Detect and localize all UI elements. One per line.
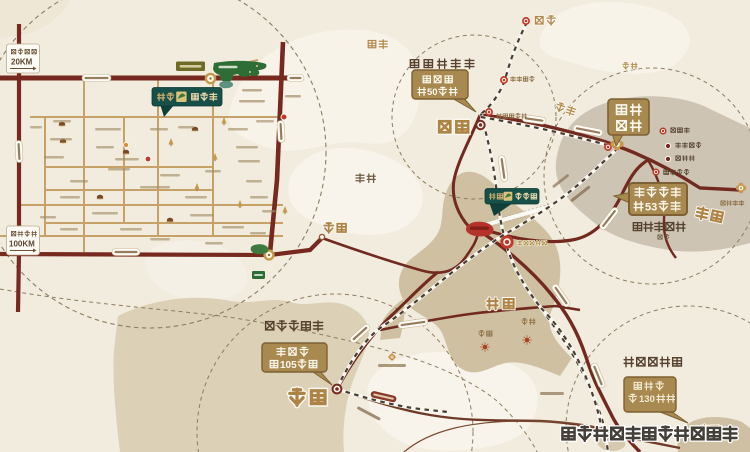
svg-text:105: 105 bbox=[280, 360, 297, 371]
svg-text:53: 53 bbox=[645, 202, 657, 214]
svg-text:100KM: 100KM bbox=[9, 240, 35, 249]
svg-text:130: 130 bbox=[639, 394, 655, 405]
svg-text:50: 50 bbox=[427, 87, 438, 98]
svg-text:20KM: 20KM bbox=[11, 58, 33, 67]
